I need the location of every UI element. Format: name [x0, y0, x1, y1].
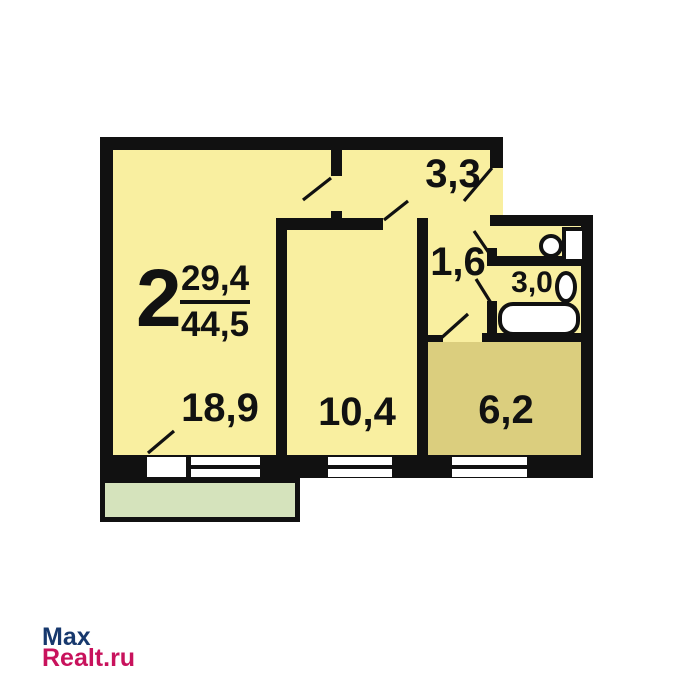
- window: [452, 469, 527, 477]
- window: [191, 469, 260, 477]
- total-area-label: 44,5: [180, 304, 250, 342]
- balcony-door-opening: [147, 457, 186, 477]
- wall-segment: [276, 218, 287, 455]
- wall-segment: [331, 150, 342, 176]
- window: [452, 457, 527, 465]
- wall-segment: [100, 137, 503, 150]
- wall-segment: [482, 333, 581, 342]
- balcony: [100, 478, 300, 522]
- window: [328, 469, 392, 477]
- watermark: Max Realt.ru: [42, 627, 135, 669]
- bedroom-area-label: 10,4: [305, 392, 409, 432]
- wall-segment: [581, 215, 593, 455]
- living-area-label: 29,4: [180, 262, 250, 304]
- rooms-count-label: 2: [136, 258, 182, 340]
- wall-segment: [427, 335, 443, 342]
- window: [191, 457, 260, 465]
- watermark-line2: Realt.ru: [42, 648, 135, 669]
- wall-segment: [490, 215, 593, 226]
- area-fraction: 29,4 44,5: [180, 262, 250, 342]
- window: [328, 457, 392, 465]
- floor-plan: 2 29,4 44,5 3,3 1,6 3,0 18,9 10,4 6,2 Ma…: [0, 0, 700, 700]
- bathroom-area-label: 3,0: [480, 268, 584, 298]
- hallway-area-label: 3,3: [401, 154, 505, 194]
- wall-segment: [276, 218, 383, 230]
- kitchen-area-label: 6,2: [454, 390, 558, 430]
- living-room-area-label: 18,9: [168, 388, 272, 428]
